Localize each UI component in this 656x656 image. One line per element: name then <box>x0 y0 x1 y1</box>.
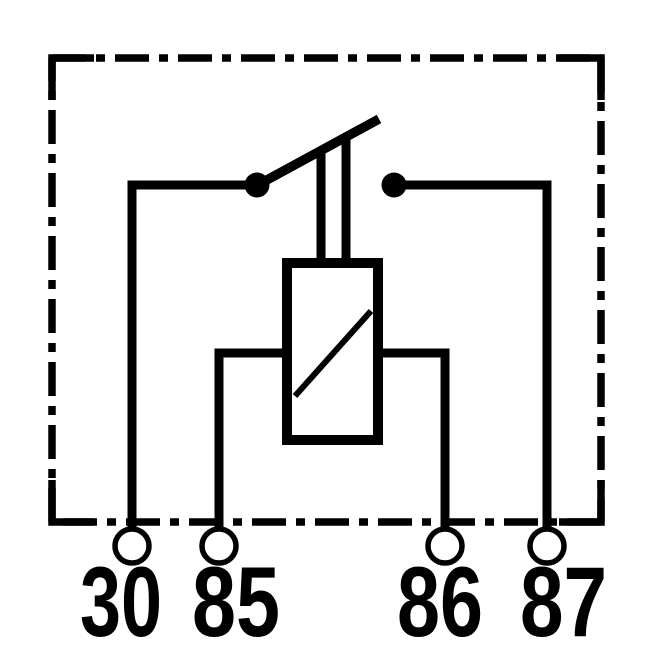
contact-dot-common <box>245 173 270 198</box>
relay-coil <box>219 263 445 529</box>
terminal-85-wire <box>219 353 288 529</box>
housing-corner-bottom-right <box>559 480 601 522</box>
housing-corner-top-left <box>52 58 94 100</box>
terminal-85-label: 85 <box>192 546 280 656</box>
terminal-pins <box>115 529 564 563</box>
terminal-labels: 30 85 86 87 <box>80 546 607 656</box>
relay-schematic-page: 30 85 86 87 <box>0 0 656 656</box>
relay-circuit-diagram: 30 85 86 87 <box>0 0 656 656</box>
terminal-86-wire <box>377 353 445 529</box>
housing-corner-top-right <box>559 58 601 100</box>
housing-corner-bottom-left <box>52 480 94 522</box>
terminal-87-label: 87 <box>520 546 607 656</box>
terminal-30-label: 30 <box>80 546 162 656</box>
contact-dot-normally-open <box>382 173 407 198</box>
terminal-86-label: 86 <box>397 546 483 656</box>
